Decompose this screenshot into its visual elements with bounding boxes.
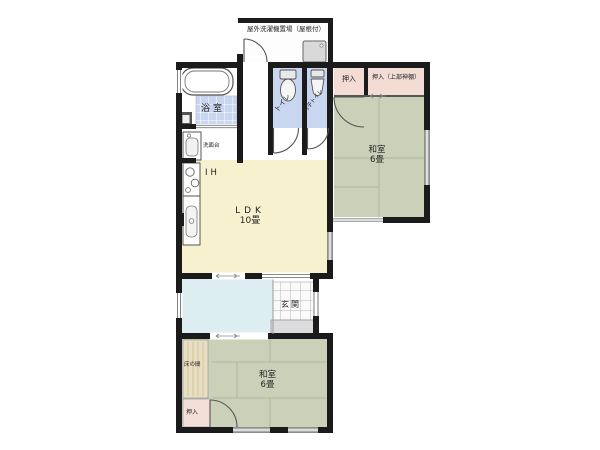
window xyxy=(333,218,383,223)
tokonoma-label: 床の間 xyxy=(184,362,201,368)
tokonoma-floor xyxy=(183,340,208,398)
window xyxy=(328,232,333,260)
floorplan-drawing xyxy=(0,0,600,450)
wall xyxy=(327,333,333,433)
door-swing xyxy=(274,128,299,153)
ih-cooktop-icon xyxy=(183,163,200,196)
ldk-size: 10畳 xyxy=(215,216,285,226)
outdoor-laundry-label: 屋外洗濯機置場（屋根付） xyxy=(238,26,334,33)
kitchen-sink-icon xyxy=(183,196,200,245)
wall xyxy=(383,217,430,223)
washing-machine-icon xyxy=(303,41,326,62)
closet-b-floor xyxy=(368,68,424,96)
door-swing xyxy=(308,128,329,149)
bathroom-label: 浴室 xyxy=(201,104,225,114)
window xyxy=(425,130,430,185)
porch-step xyxy=(271,320,316,334)
wall xyxy=(176,124,196,129)
wall xyxy=(238,18,333,23)
wall xyxy=(176,213,184,226)
washitsu-bottom-size: 6畳 xyxy=(235,381,300,391)
closet-bottom-label: 押入 xyxy=(186,410,198,417)
window xyxy=(233,428,270,433)
closet-a-label: 押入 xyxy=(334,75,364,83)
bathtub-icon xyxy=(181,68,233,95)
wall xyxy=(237,62,243,163)
genkan-label: 玄関 xyxy=(281,300,301,309)
washitsu-right-size: 6畳 xyxy=(349,156,405,166)
window xyxy=(288,428,318,433)
window xyxy=(176,70,183,93)
floorplan-canvas: 屋外洗濯機置場（屋根付） 浴室 洗面台 トイレ 男子トイレ 押入 押入（上部神棚… xyxy=(0,0,600,450)
ih-label: IH xyxy=(205,169,220,179)
hall-floor xyxy=(182,279,273,334)
washbasin-icon xyxy=(183,132,201,160)
wall xyxy=(176,158,196,163)
window xyxy=(176,293,183,318)
ldk-name: LDK xyxy=(215,206,285,216)
closet-b-label: 押入（上部神棚） xyxy=(368,75,424,82)
wall xyxy=(176,62,182,433)
wall xyxy=(328,18,333,62)
washbasin-label: 洗面台 xyxy=(203,143,220,149)
sliding-door xyxy=(196,124,237,129)
